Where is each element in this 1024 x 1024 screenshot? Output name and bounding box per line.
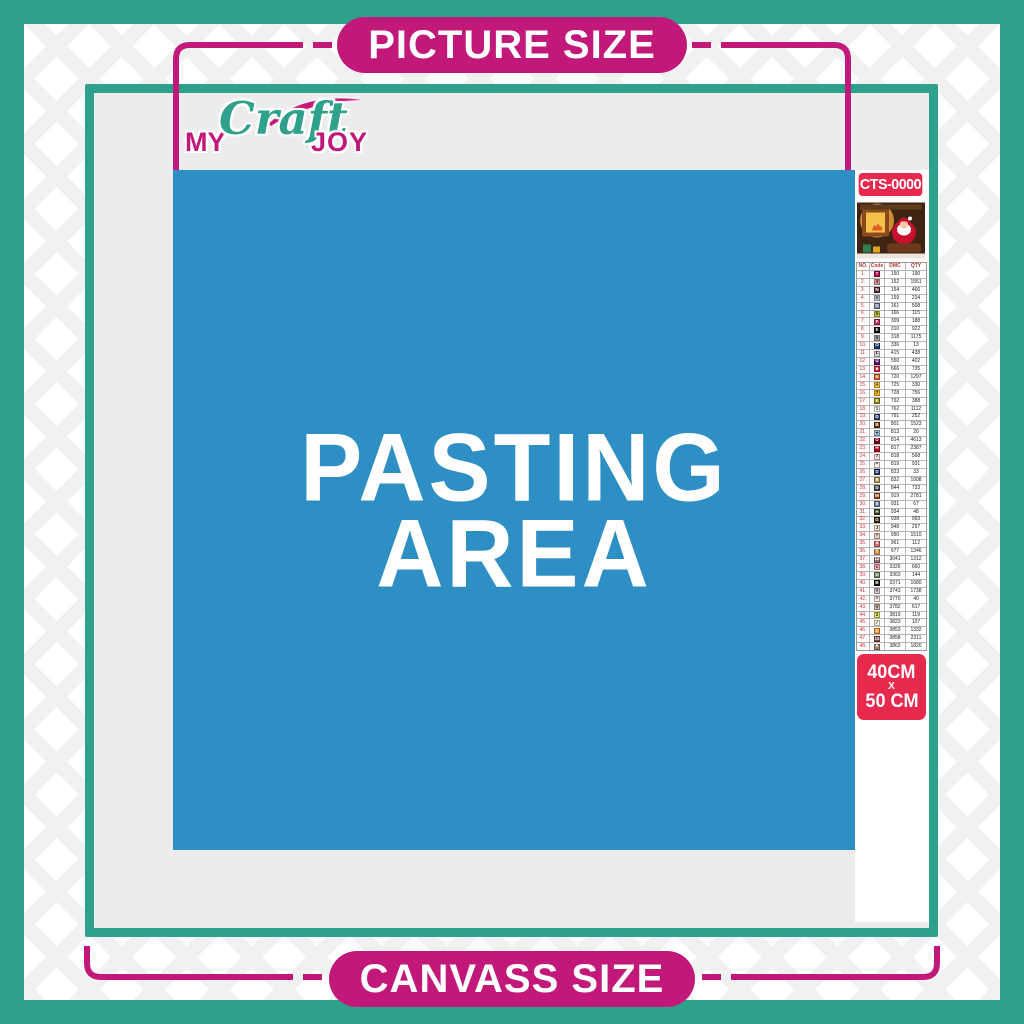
legend-row: 24.7818568 <box>857 452 926 460</box>
cell-qty: 402 <box>906 358 926 365</box>
cell-dmc: 961 <box>885 540 906 547</box>
legend-row: 44.23819119 <box>857 611 926 619</box>
legend-row: 10.O33613 <box>857 341 926 349</box>
cell-code: V <box>870 604 885 611</box>
color-symbol-swatch: ● <box>874 430 880 436</box>
cell-dmc: 934 <box>885 509 906 516</box>
cell-no: 6. <box>857 311 870 318</box>
legend-row: 38.c3326660 <box>857 563 926 571</box>
cell-no: 14. <box>857 374 870 381</box>
cell-no: 44. <box>857 612 870 619</box>
product-template-poster: PICTURE SIZE MY Craft JOY PASTING AREA C… <box>0 0 1024 1024</box>
legend-row: 21.●81320 <box>857 428 926 436</box>
header-qty: QTY <box>906 263 926 270</box>
cell-qty: 466 <box>906 287 926 294</box>
cell-code: ^ <box>870 596 885 603</box>
legend-row: 41.Y37431738 <box>857 587 926 595</box>
legend-row: 13.■666735 <box>857 365 926 373</box>
size-height: 50 CM <box>865 692 918 711</box>
color-symbol-swatch: E <box>874 327 880 333</box>
cell-code: O <box>870 342 885 349</box>
legend-row: 35.4961112 <box>857 539 926 547</box>
legend-row: 2.31521551 <box>857 278 926 286</box>
color-symbol-swatch: ✓ <box>874 620 880 626</box>
cell-code: ✓ <box>870 619 885 626</box>
cell-dmc: 832 <box>885 477 906 484</box>
color-symbol-swatch: 2 <box>874 612 880 618</box>
cell-no: 34. <box>857 532 870 539</box>
cell-dmc: 159 <box>885 295 906 302</box>
cell-qty: 115 <box>906 311 926 318</box>
cell-qty: 234 <box>906 295 926 302</box>
size-width: 40CM <box>867 663 915 682</box>
cell-code: S <box>870 501 885 508</box>
color-symbol-swatch: ■ <box>874 366 880 372</box>
picture-size-banner: PICTURE SIZE <box>337 17 687 73</box>
cell-dmc: 813 <box>885 429 906 436</box>
cell-dmc: 3863 <box>885 643 906 650</box>
cell-dmc: 3326 <box>885 564 906 571</box>
color-symbol-swatch: 12 <box>874 557 880 563</box>
legend-row: 47.1338582311 <box>857 634 926 642</box>
cell-qty: 388 <box>906 398 926 405</box>
cell-dmc: 791 <box>885 414 906 421</box>
cell-dmc: 950 <box>885 532 906 539</box>
legend-row: 5.G161508 <box>857 302 926 310</box>
cell-no: 7. <box>857 318 870 325</box>
cell-qty: 4613 <box>906 437 926 444</box>
color-symbol-swatch: G <box>874 517 880 523</box>
cell-qty: 1175 <box>906 334 926 341</box>
color-legend-table: NO. Code DMC QTY 1.T1501902.315215513.N1… <box>856 262 927 651</box>
color-symbol-swatch: c <box>874 564 880 570</box>
cell-dmc: 310 <box>885 326 906 333</box>
cell-no: 43. <box>857 604 870 611</box>
cell-no: 20. <box>857 421 870 428</box>
cell-code: B <box>870 580 885 587</box>
cell-dmc: 3853 <box>885 627 906 634</box>
cell-dmc: 309 <box>885 318 906 325</box>
legend-row: 12.U550402 <box>857 357 926 365</box>
legend-row: 8.E310922 <box>857 325 926 333</box>
cell-no: 45. <box>857 619 870 626</box>
cell-no: 1. <box>857 271 870 278</box>
color-symbol-swatch: * <box>874 533 880 539</box>
legend-header-row: NO. Code DMC QTY <box>857 263 926 270</box>
cell-code: B <box>870 421 885 428</box>
legend-row: 40.B33711680 <box>857 579 926 587</box>
legend-row: 27.88321008 <box>857 476 926 484</box>
cell-qty: 40 <box>906 596 926 603</box>
cell-qty: 1820 <box>906 643 926 650</box>
cell-no: 35. <box>857 540 870 547</box>
cell-no: 10. <box>857 342 870 349</box>
legend-row: 42.^377040 <box>857 595 926 603</box>
cell-qty: 1510 <box>906 532 926 539</box>
cell-qty: 119 <box>906 612 926 619</box>
cell-no: 9. <box>857 334 870 341</box>
cell-no: 26. <box>857 469 870 476</box>
color-symbol-swatch: U <box>874 572 880 578</box>
picture-size-label: PICTURE SIZE <box>368 23 656 68</box>
cell-no: 38. <box>857 564 870 571</box>
cell-qty: 112 <box>906 540 926 547</box>
color-symbol-swatch: E <box>874 398 880 404</box>
color-symbol-swatch: ^ <box>874 596 880 602</box>
cell-qty: 438 <box>906 350 926 357</box>
header-code: Code <box>870 263 885 270</box>
cell-code: C <box>870 627 885 634</box>
legend-row: 30.S93167 <box>857 500 926 508</box>
legend-row: 1.T150190 <box>857 270 926 278</box>
cell-no: 18. <box>857 406 870 413</box>
cell-dmc: 3770 <box>885 596 906 603</box>
cell-code: 12 <box>870 556 885 563</box>
cell-qty: 733 <box>906 485 926 492</box>
cell-code: 3 <box>870 279 885 286</box>
cell-dmc: 819 <box>885 461 906 468</box>
color-symbol-swatch: V <box>874 604 880 610</box>
legend-row: 46.C38531332 <box>857 626 926 634</box>
cell-qty: 756 <box>906 390 926 397</box>
cell-qty: 1738 <box>906 588 926 595</box>
cell-qty: 993 <box>906 517 926 524</box>
color-symbol-swatch: 8 <box>874 477 880 483</box>
cell-dmc: 814 <box>885 437 906 444</box>
legend-row: 25.+819931 <box>857 460 926 468</box>
cell-dmc: 154 <box>885 287 906 294</box>
legend-sidebar: CTS-0000 NO. Code DMC QTY <box>855 170 929 922</box>
cell-code: 7 <box>870 453 885 460</box>
cell-dmc: 3858 <box>885 635 906 642</box>
cell-no: 31. <box>857 509 870 516</box>
color-symbol-swatch: A <box>874 382 880 388</box>
cell-no: 16. <box>857 390 870 397</box>
legend-row: 48.A38631820 <box>857 642 926 650</box>
color-symbol-swatch: B <box>874 580 880 586</box>
color-symbol-swatch: 1 <box>874 406 880 412</box>
cell-code: D <box>870 414 885 421</box>
cell-code: N <box>870 374 885 381</box>
cell-qty: 922 <box>906 326 926 333</box>
cell-no: 36. <box>857 548 870 555</box>
cell-dmc: 3743 <box>885 588 906 595</box>
cell-code: 4 <box>870 540 885 547</box>
cell-dmc: 166 <box>885 311 906 318</box>
cell-code: F <box>870 318 885 325</box>
legend-row: 6.h166115 <box>857 310 926 318</box>
cell-qty: 1346 <box>906 548 926 555</box>
cell-dmc: 823 <box>885 469 906 476</box>
cell-qty: 13 <box>906 342 926 349</box>
legend-row: 17.E732388 <box>857 397 926 405</box>
color-symbol-swatch: N <box>874 287 880 293</box>
legend-row: 36.T9771346 <box>857 547 926 555</box>
legend-row: 3.N154466 <box>857 286 926 294</box>
cell-no: 4. <box>857 295 870 302</box>
cell-dmc: 550 <box>885 358 906 365</box>
cell-dmc: 818 <box>885 453 906 460</box>
color-symbol-swatch: 7 <box>874 390 880 396</box>
header-no: NO. <box>857 263 870 270</box>
legend-row: 15.A725330 <box>857 381 926 389</box>
cell-no: 27. <box>857 477 870 484</box>
cell-no: 21. <box>857 429 870 436</box>
cell-dmc: 817 <box>885 445 906 452</box>
cell-no: 32. <box>857 517 870 524</box>
cell-qty: 188 <box>906 318 926 325</box>
design-thumbnail-image <box>857 202 925 259</box>
header-dmc: DMC <box>885 263 906 270</box>
pasting-area-line2: AREA <box>376 508 652 597</box>
cell-code: A <box>870 643 885 650</box>
color-symbol-swatch: h <box>874 311 880 317</box>
cell-dmc: 150 <box>885 271 906 278</box>
cell-dmc: 415 <box>885 350 906 357</box>
legend-row: 23.H8172387 <box>857 444 926 452</box>
color-symbol-swatch: Y <box>874 588 880 594</box>
cell-no: 5. <box>857 303 870 310</box>
cell-qty: 1523 <box>906 421 926 428</box>
cell-code: A <box>870 382 885 389</box>
cell-dmc: 161 <box>885 303 906 310</box>
cell-dmc: 938 <box>885 517 906 524</box>
cell-dmc: 666 <box>885 366 906 373</box>
cell-qty: 1312 <box>906 556 926 563</box>
color-symbol-swatch: D <box>874 485 880 491</box>
cell-dmc: 728 <box>885 390 906 397</box>
color-symbol-swatch: S <box>874 501 880 507</box>
cell-qty: 190 <box>906 271 926 278</box>
cell-dmc: 3371 <box>885 580 906 587</box>
color-symbol-swatch: H <box>874 509 880 515</box>
cell-dmc: 3041 <box>885 556 906 563</box>
cell-dmc: 919 <box>885 493 906 500</box>
cell-code: Y <box>870 588 885 595</box>
cell-no: 8. <box>857 326 870 333</box>
cell-qty: 1680 <box>906 580 926 587</box>
cell-no: 23. <box>857 445 870 452</box>
cell-code: O <box>870 437 885 444</box>
legend-row: 29.M9192781 <box>857 492 926 500</box>
cell-no: 48. <box>857 643 870 650</box>
cell-code: 2 <box>870 612 885 619</box>
color-symbol-swatch: 13 <box>874 636 880 642</box>
cell-code: + <box>870 461 885 468</box>
cell-qty: 660 <box>906 564 926 571</box>
color-symbol-swatch: X <box>874 335 880 341</box>
legend-row: 19.D791252 <box>857 413 926 421</box>
cell-code: ■ <box>870 366 885 373</box>
cell-no: 29. <box>857 493 870 500</box>
cell-no: 40. <box>857 580 870 587</box>
legend-row: 4.X159234 <box>857 294 926 302</box>
legend-row: 31.H93448 <box>857 508 926 516</box>
color-symbol-swatch: F <box>874 319 880 325</box>
cell-dmc: 801 <box>885 421 906 428</box>
color-symbol-swatch: N <box>874 374 880 380</box>
cell-code: ● <box>870 429 885 436</box>
logo-word-joy: JOY <box>311 127 368 158</box>
color-symbol-swatch: D <box>874 469 880 475</box>
cell-no: 42. <box>857 596 870 603</box>
cell-qty: 33 <box>906 469 926 476</box>
cell-code: G <box>870 303 885 310</box>
cell-dmc: 844 <box>885 485 906 492</box>
color-symbol-swatch: 4 <box>874 541 880 547</box>
cell-no: 19. <box>857 414 870 421</box>
canvass-size-label: CANVASS SIZE <box>360 957 665 1002</box>
cell-no: 46. <box>857 627 870 634</box>
legend-row: 7.F309188 <box>857 317 926 325</box>
cell-no: 37. <box>857 556 870 563</box>
color-symbol-swatch: J <box>874 525 880 531</box>
legend-row: 28.D844733 <box>857 484 926 492</box>
legend-row: 14.N7201297 <box>857 373 926 381</box>
cell-dmc: 977 <box>885 548 906 555</box>
cell-no: 28. <box>857 485 870 492</box>
legend-row: 18.17621112 <box>857 405 926 413</box>
cell-dmc: 3823 <box>885 619 906 626</box>
cell-no: 25. <box>857 461 870 468</box>
legend-row: 34.*9501510 <box>857 531 926 539</box>
cell-dmc: 3782 <box>885 604 906 611</box>
cell-dmc: 3363 <box>885 572 906 579</box>
cell-dmc: 3819 <box>885 612 906 619</box>
cell-code: T <box>870 548 885 555</box>
cell-no: 24. <box>857 453 870 460</box>
cell-qty: 48 <box>906 509 926 516</box>
color-symbol-swatch: D <box>874 414 880 420</box>
cell-code: X <box>870 334 885 341</box>
cell-no: 30. <box>857 501 870 508</box>
cell-no: 47. <box>857 635 870 642</box>
cell-qty: 107 <box>906 619 926 626</box>
cell-no: 33. <box>857 524 870 531</box>
cell-code: H <box>870 445 885 452</box>
cell-dmc: 931 <box>885 501 906 508</box>
color-symbol-swatch: X <box>874 295 880 301</box>
color-symbol-swatch: U <box>874 359 880 365</box>
cell-no: 13. <box>857 366 870 373</box>
color-symbol-swatch: O <box>874 343 880 349</box>
color-symbol-swatch: + <box>874 462 880 468</box>
cell-code: X <box>870 295 885 302</box>
color-symbol-swatch: B <box>874 422 880 428</box>
cell-code: E <box>870 398 885 405</box>
cell-code: G <box>870 517 885 524</box>
cell-code: N <box>870 287 885 294</box>
cell-no: 39. <box>857 572 870 579</box>
cell-dmc: 720 <box>885 374 906 381</box>
legend-row: 20.B8011523 <box>857 420 926 428</box>
cell-code: h <box>870 311 885 318</box>
color-symbol-swatch: 3 <box>874 279 880 285</box>
cell-code: M <box>870 493 885 500</box>
cell-code: J <box>870 524 885 531</box>
cell-no: 17. <box>857 398 870 405</box>
cell-dmc: 725 <box>885 382 906 389</box>
cell-qty: 1112 <box>906 406 926 413</box>
cell-code: U <box>870 572 885 579</box>
cell-code: 13 <box>870 635 885 642</box>
cell-dmc: 318 <box>885 334 906 341</box>
cell-qty: 330 <box>906 382 926 389</box>
cell-code: * <box>870 532 885 539</box>
cell-code: E <box>870 326 885 333</box>
cell-no: 3. <box>857 287 870 294</box>
color-symbol-swatch: M <box>874 493 880 499</box>
pasting-area: PASTING AREA <box>173 170 855 850</box>
size-badge: 40CM X 50 CM <box>855 652 928 722</box>
cell-qty: 2311 <box>906 635 926 642</box>
cell-code: 7 <box>870 390 885 397</box>
cell-qty: 297 <box>906 524 926 531</box>
color-symbol-swatch: L <box>874 351 880 357</box>
legend-row: 43.V3782617 <box>857 603 926 611</box>
cell-code: c <box>870 564 885 571</box>
cell-no: 2. <box>857 279 870 286</box>
color-symbol-swatch: T <box>874 549 880 555</box>
cell-no: 22. <box>857 437 870 444</box>
legend-row: 32.G938993 <box>857 516 926 524</box>
cell-qty: 67 <box>906 501 926 508</box>
cell-no: 12. <box>857 358 870 365</box>
cell-qty: 252 <box>906 414 926 421</box>
cell-code: T <box>870 271 885 278</box>
cell-dmc: 948 <box>885 524 906 531</box>
cell-qty: 2387 <box>906 445 926 452</box>
cell-qty: 568 <box>906 453 926 460</box>
legend-row: 26.D82333 <box>857 468 926 476</box>
cell-code: U <box>870 358 885 365</box>
cell-qty: 2781 <box>906 493 926 500</box>
cell-qty: 1297 <box>906 374 926 381</box>
cell-qty: 144 <box>906 572 926 579</box>
legend-row: 39.U3363144 <box>857 571 926 579</box>
cell-qty: 508 <box>906 303 926 310</box>
cell-code: D <box>870 469 885 476</box>
cell-qty: 1008 <box>906 477 926 484</box>
sku-badge: CTS-0000 <box>857 171 924 198</box>
legend-row: 11.L415438 <box>857 349 926 357</box>
legend-row: 33.J948297 <box>857 523 926 531</box>
color-symbol-swatch: 7 <box>874 454 880 460</box>
cell-code: L <box>870 350 885 357</box>
color-symbol-swatch: H <box>874 446 880 452</box>
color-symbol-swatch: C <box>874 628 880 634</box>
cell-no: 11. <box>857 350 870 357</box>
cell-dmc: 336 <box>885 342 906 349</box>
cell-qty: 1551 <box>906 279 926 286</box>
cell-code: D <box>870 485 885 492</box>
canvass-size-banner: CANVASS SIZE <box>329 951 695 1007</box>
color-symbol-swatch: A <box>874 644 880 650</box>
cell-no: 15. <box>857 382 870 389</box>
legend-row: 37.1230411312 <box>857 555 926 563</box>
cell-qty: 20 <box>906 429 926 436</box>
legend-row: 16.7728756 <box>857 389 926 397</box>
cell-dmc: 732 <box>885 398 906 405</box>
cell-code: H <box>870 509 885 516</box>
cell-code: 1 <box>870 406 885 413</box>
legend-row: 22.O8144613 <box>857 436 926 444</box>
cell-qty: 1332 <box>906 627 926 634</box>
cell-qty: 617 <box>906 604 926 611</box>
cell-qty: 735 <box>906 366 926 373</box>
color-symbol-swatch: O <box>874 438 880 444</box>
cell-no: 41. <box>857 588 870 595</box>
